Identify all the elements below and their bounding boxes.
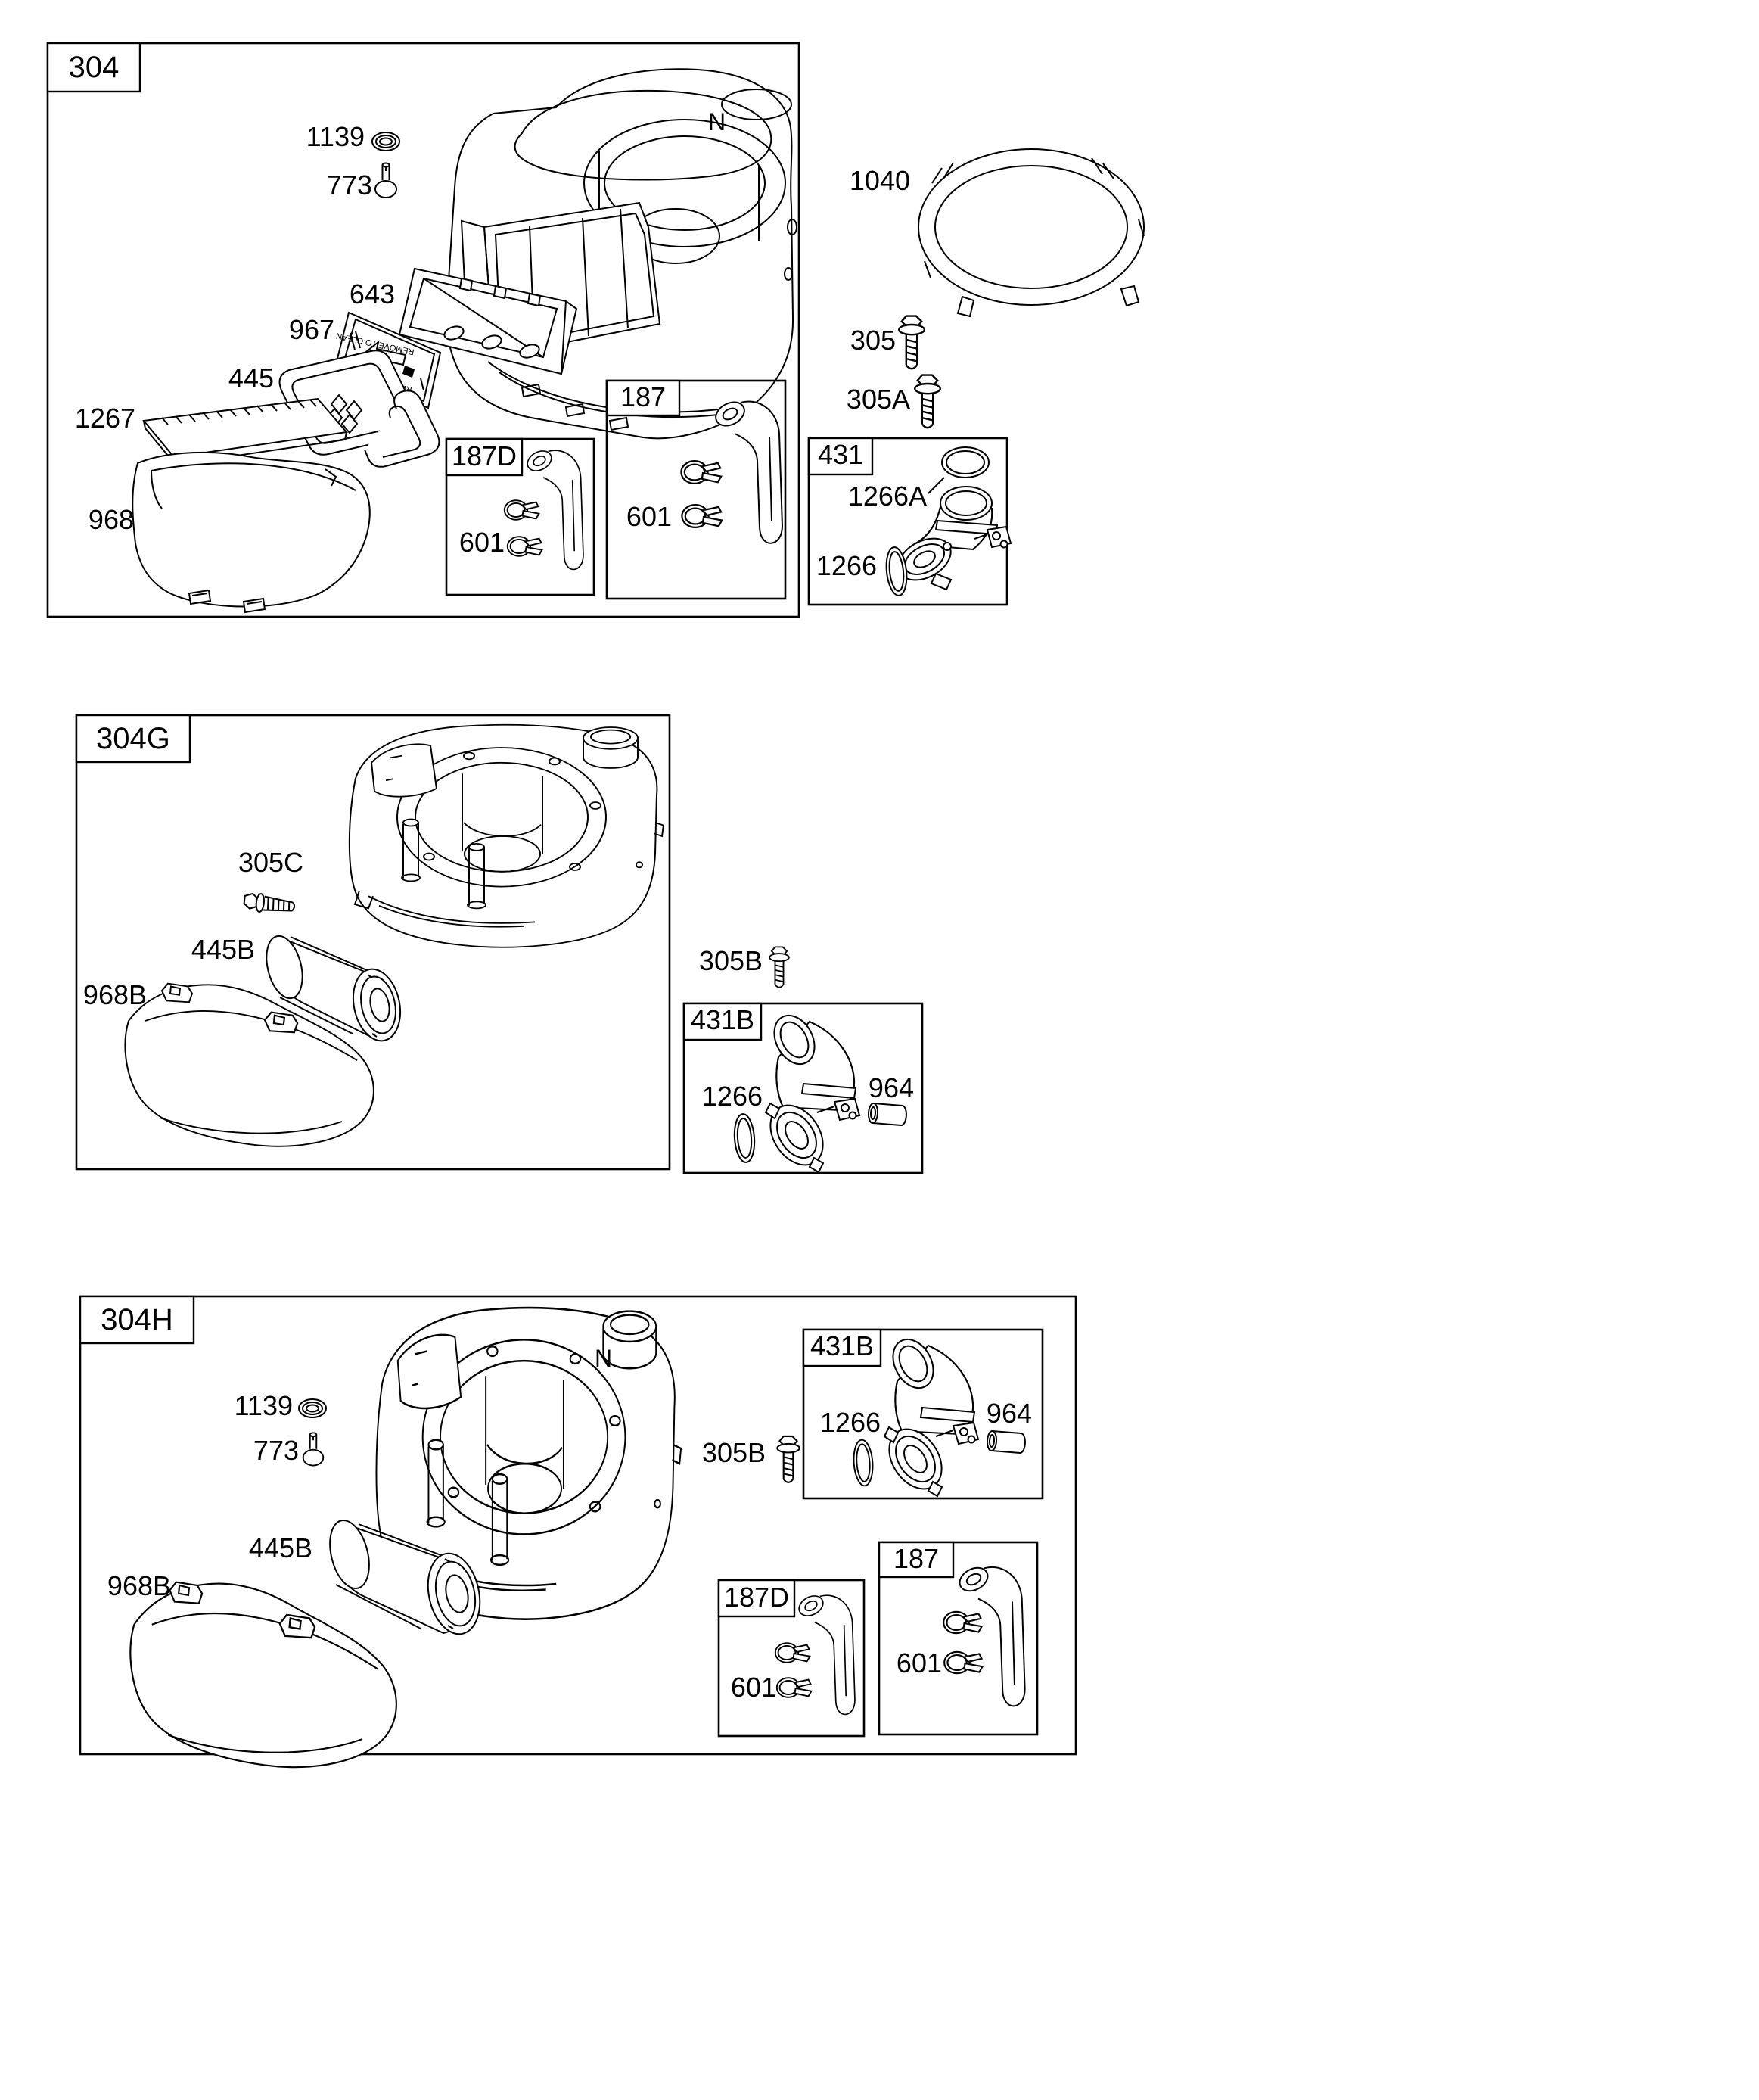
callout-1266-h: 1266 (820, 1407, 881, 1438)
part-601-clamp (681, 461, 721, 484)
part-305c-screw (244, 892, 296, 916)
callout-643: 643 (350, 278, 395, 310)
part-431b-intake-elbow-h (878, 1333, 978, 1499)
part-773-plug (375, 163, 396, 198)
box-431b-h-label: 431B (810, 1330, 874, 1361)
callout-968b-g: 968B (83, 979, 147, 1010)
box-431-label: 431 (818, 439, 863, 470)
box-431b-h: 431B 1266 964 (803, 1330, 1043, 1498)
section-304h: 304H N 1139 773 445B 968B (80, 1296, 1076, 1767)
part-601-clamp (505, 500, 539, 520)
parts-diagram-canvas: 304 N 1139 773 643 (0, 0, 1759, 2100)
part-601-clamp (682, 505, 722, 527)
box-187-h: 187 601 (879, 1542, 1037, 1734)
section-304: 304 N 1139 773 643 (48, 43, 799, 617)
callout-1266: 1266 (816, 550, 877, 581)
callout-1139: 1139 (306, 121, 365, 152)
callout-1139-h: 1139 (235, 1390, 293, 1421)
callout-601-h1: 601 (731, 1672, 776, 1703)
callout-967: 967 (289, 314, 334, 345)
part-305a-screw (915, 375, 940, 428)
callout-1266-g: 1266 (702, 1081, 763, 1112)
box-187d-h: 187D 601 (719, 1580, 864, 1736)
part-431b-intake-elbow-g (760, 1009, 859, 1175)
callout-305a: 305A (847, 384, 910, 415)
part-1266-oring-g (733, 1113, 756, 1163)
box-431b-g: 431B 1266 964 (684, 1003, 922, 1174)
box-187-label: 187 (620, 381, 666, 412)
part-601-clamp (943, 1612, 981, 1633)
callout-964-h: 964 (987, 1398, 1032, 1429)
part-305-screw (899, 316, 925, 369)
box-431: 431 1266A 1266 (809, 438, 1011, 605)
part-601-clamp (944, 1652, 982, 1673)
callout-1266a: 1266A (848, 481, 927, 512)
part-968b-cover-h (130, 1582, 396, 1768)
part-1266a-oring (942, 447, 989, 478)
callout-305: 305 (850, 325, 896, 356)
callout-445b-h: 445B (249, 1532, 312, 1563)
part-601-clamp (775, 1643, 810, 1663)
part-1139-grommet (372, 132, 399, 151)
part-964-bushing-g (868, 1103, 906, 1126)
part-601-clamp (508, 537, 542, 556)
section-304g: 304G 305C 445B 968B (76, 715, 670, 1169)
part-773-plug-h (303, 1433, 324, 1465)
part-305b-screw-g (769, 947, 789, 987)
part-305b-screw-h (777, 1436, 799, 1482)
callout-305c: 305C (238, 847, 303, 878)
section-304h-label: 304H (101, 1303, 173, 1336)
part-601-clamp (777, 1678, 812, 1697)
callout-1267: 1267 (75, 403, 135, 434)
callout-445: 445 (228, 362, 274, 394)
callout-601: 601 (626, 501, 672, 532)
callout-445b-g: 445B (191, 934, 255, 965)
box-187-h-label: 187 (893, 1543, 939, 1574)
callout-773-h: 773 (253, 1435, 299, 1466)
box-431b-g-label: 431B (691, 1004, 754, 1035)
housing-cast-letter-h: N (595, 1345, 612, 1372)
box-187d-h-label: 187D (724, 1582, 789, 1613)
part-1139-grommet-h (299, 1399, 326, 1417)
section-304-label: 304 (69, 51, 120, 84)
section-304g-label: 304G (96, 722, 170, 755)
part-1266-oring-h (853, 1439, 875, 1486)
part-housing-304g-drawing (350, 725, 664, 947)
part-187-tube-h (956, 1563, 1024, 1706)
callout-305b-g: 305B (699, 945, 763, 976)
callout-964-g: 964 (869, 1072, 914, 1103)
callout-601: 601 (459, 527, 505, 558)
box-187d-label: 187D (452, 440, 517, 471)
callout-968b-h: 968B (107, 1570, 171, 1601)
part-964-bushing-h (987, 1431, 1025, 1454)
leader-1266a (928, 478, 944, 493)
part-187-tube (712, 397, 782, 543)
callout-773: 773 (327, 170, 372, 201)
callout-1040: 1040 (850, 165, 910, 196)
callout-305b-h: 305B (702, 1437, 766, 1468)
callout-968: 968 (89, 504, 134, 535)
box-187d: 187D 601 (446, 439, 594, 595)
callout-601-h2: 601 (897, 1647, 942, 1678)
housing-cast-letter: N (708, 108, 726, 135)
part-1040-retainer-ring (918, 149, 1144, 316)
loose-parts-top-right: 1040 305 305A 431 1266A (809, 149, 1144, 605)
loose-parts-mid-right: 305B 431B 1266 964 (684, 945, 922, 1174)
part-968-cover (132, 453, 370, 612)
